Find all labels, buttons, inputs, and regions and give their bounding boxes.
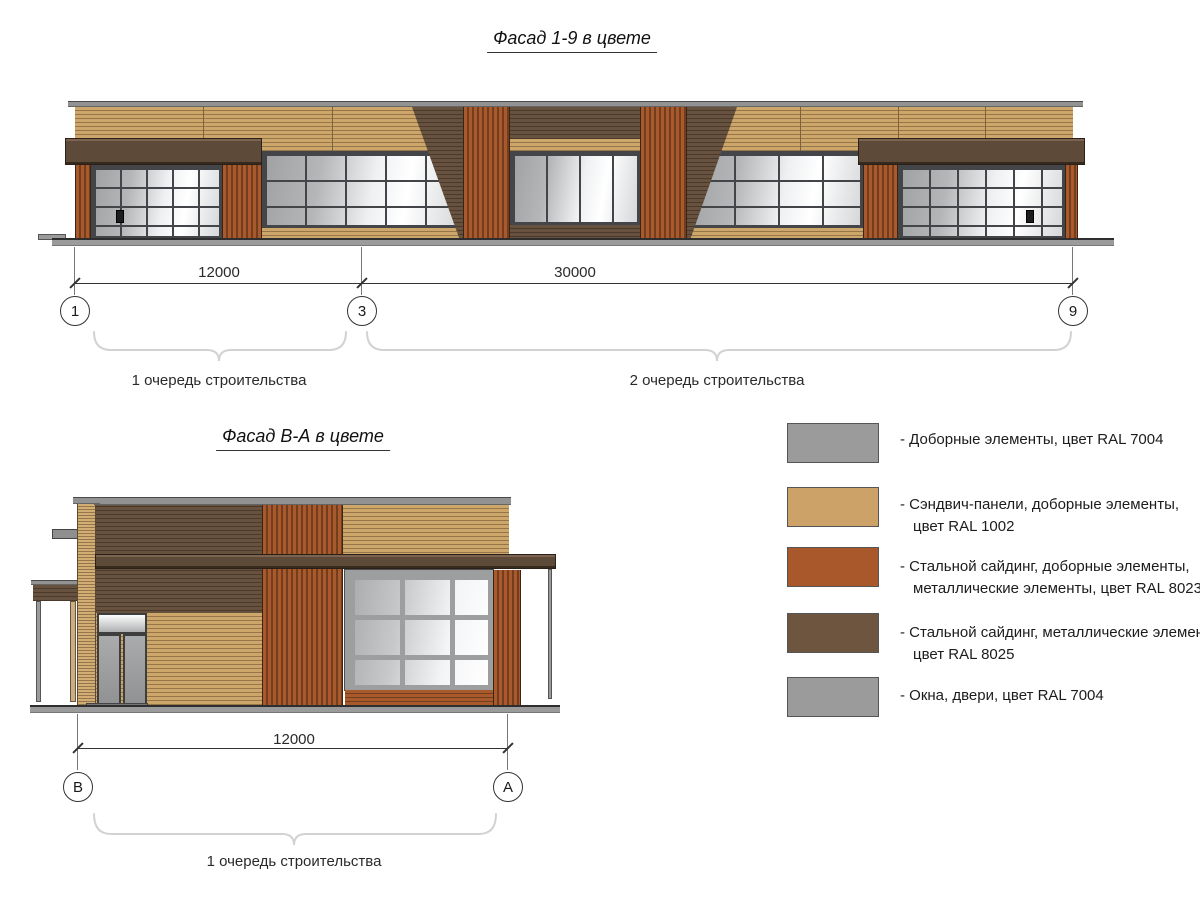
legend-item-ral-1002: - Сэндвич-панели, доборные элементы, цве… [787, 487, 879, 527]
axis-bubble-1: 1 [60, 296, 90, 326]
dark-siding-band [510, 107, 640, 139]
door-leaf-left [97, 634, 121, 707]
storefront-window-left [91, 165, 222, 239]
axis-bubble-b: В [63, 772, 93, 802]
window-3x3 [345, 570, 493, 690]
axis-line [507, 714, 508, 770]
phase-brace [366, 330, 1072, 364]
canopy-post [36, 601, 41, 702]
fascia-left [65, 138, 262, 165]
axis-line [1072, 247, 1073, 295]
dimension-value: 30000 [554, 264, 596, 281]
door-leaf-right [123, 634, 147, 707]
fascia-right [858, 138, 1085, 165]
slat-pilaster [75, 165, 91, 239]
dark-siding-base [510, 225, 640, 239]
door-handle [116, 210, 124, 223]
axis-bubble-a: А [493, 772, 523, 802]
legend-line: - Стальной сайдинг, доборные элементы, [900, 556, 1200, 578]
phase-label-2: 2 очередь строительства [630, 372, 805, 389]
door-transom [97, 613, 147, 634]
slat-tower [77, 504, 96, 707]
vertical-slat-column [463, 107, 510, 243]
beam-post [548, 569, 552, 699]
parapet-cap [94, 497, 511, 505]
slat-pilaster [222, 165, 262, 239]
panel-seam [332, 107, 333, 151]
legend-line: - Окна, двери, цвет RAL 7004 [900, 685, 1104, 707]
vertical-slat-column [262, 503, 343, 707]
axis-bubble-3: 3 [347, 296, 377, 326]
legend-swatch-ral-1002 [787, 487, 879, 527]
phase-label-1: 1 очередь строительства [132, 372, 307, 389]
ground-line-top [52, 238, 1114, 246]
door-handle [1026, 210, 1034, 223]
window-wall-center [510, 151, 640, 225]
parapet-cap [68, 101, 1083, 107]
phase-label-1: 1 очередь строительства [207, 853, 382, 870]
legend-swatch-ral-8025 [787, 613, 879, 653]
wood-strip [510, 139, 640, 151]
axis-line [361, 247, 362, 295]
facade-drawing-sheet: Фасад 1-9 в цвете Фасад В-А в цвете 1200… [0, 0, 1200, 900]
legend-line: цвет RAL 8025 [900, 644, 1200, 666]
axis-line [74, 247, 75, 295]
legend-label: - Стальной сайдинг, металлические элемен… [900, 622, 1200, 666]
legend-swatch-windows-ral-7004 [787, 677, 879, 717]
dimension-line [78, 748, 508, 749]
legend-line: - Доборные элементы, цвет RAL 7004 [900, 429, 1163, 451]
legend-label: - Стальной сайдинг, доборные элементы, м… [900, 556, 1200, 600]
slat-pilaster [493, 570, 521, 707]
wood-band-upper [343, 505, 509, 555]
legend-label: - Сэндвич-панели, доборные элементы, цве… [900, 494, 1179, 538]
corner-post [70, 601, 76, 702]
vertical-slat-column [640, 107, 687, 243]
panel-seam [800, 107, 801, 151]
dimension-line [75, 283, 1073, 284]
legend-line: цвет RAL 1002 [900, 516, 1179, 538]
dimension-value: 12000 [273, 731, 315, 748]
slat-pilaster [863, 165, 898, 239]
storefront-window-right [898, 165, 1065, 239]
axis-line [77, 714, 78, 770]
title-facade-1-9: Фасад 1-9 в цвете [487, 28, 657, 53]
ground-line-bottom [30, 705, 560, 713]
legend-swatch-ral-8023 [787, 547, 879, 587]
dimension-value: 12000 [198, 264, 240, 281]
legend-item-windows-ral-7004: - Окна, двери, цвет RAL 7004 [787, 677, 879, 717]
phase-brace [93, 812, 497, 848]
legend-item-ral-7004: - Доборные элементы, цвет RAL 7004 [787, 423, 879, 463]
slat-pilaster [1065, 165, 1078, 239]
axis-bubble-9: 9 [1058, 296, 1088, 326]
canopy-bracket [52, 529, 79, 539]
parapet-cap [73, 497, 100, 504]
legend-line: металлические элементы, цвет RAL 8023 [900, 578, 1200, 600]
entrance-canopy [33, 585, 78, 601]
phase-brace [93, 330, 347, 364]
fascia-beam [95, 554, 556, 569]
legend-label: - Доборные элементы, цвет RAL 7004 [900, 429, 1163, 451]
legend-item-ral-8025: - Стальной сайдинг, металлические элемен… [787, 613, 879, 653]
legend-line: - Сэндвич-панели, доборные элементы, [900, 494, 1179, 516]
title-facade-b-a: Фасад В-А в цвете [216, 426, 390, 451]
legend-label: - Окна, двери, цвет RAL 7004 [900, 685, 1104, 707]
legend-swatch-ral-7004 [787, 423, 879, 463]
legend-item-ral-8023: - Стальной сайдинг, доборные элементы, м… [787, 547, 879, 587]
legend-line: - Стальной сайдинг, металлические элемен… [900, 622, 1200, 644]
